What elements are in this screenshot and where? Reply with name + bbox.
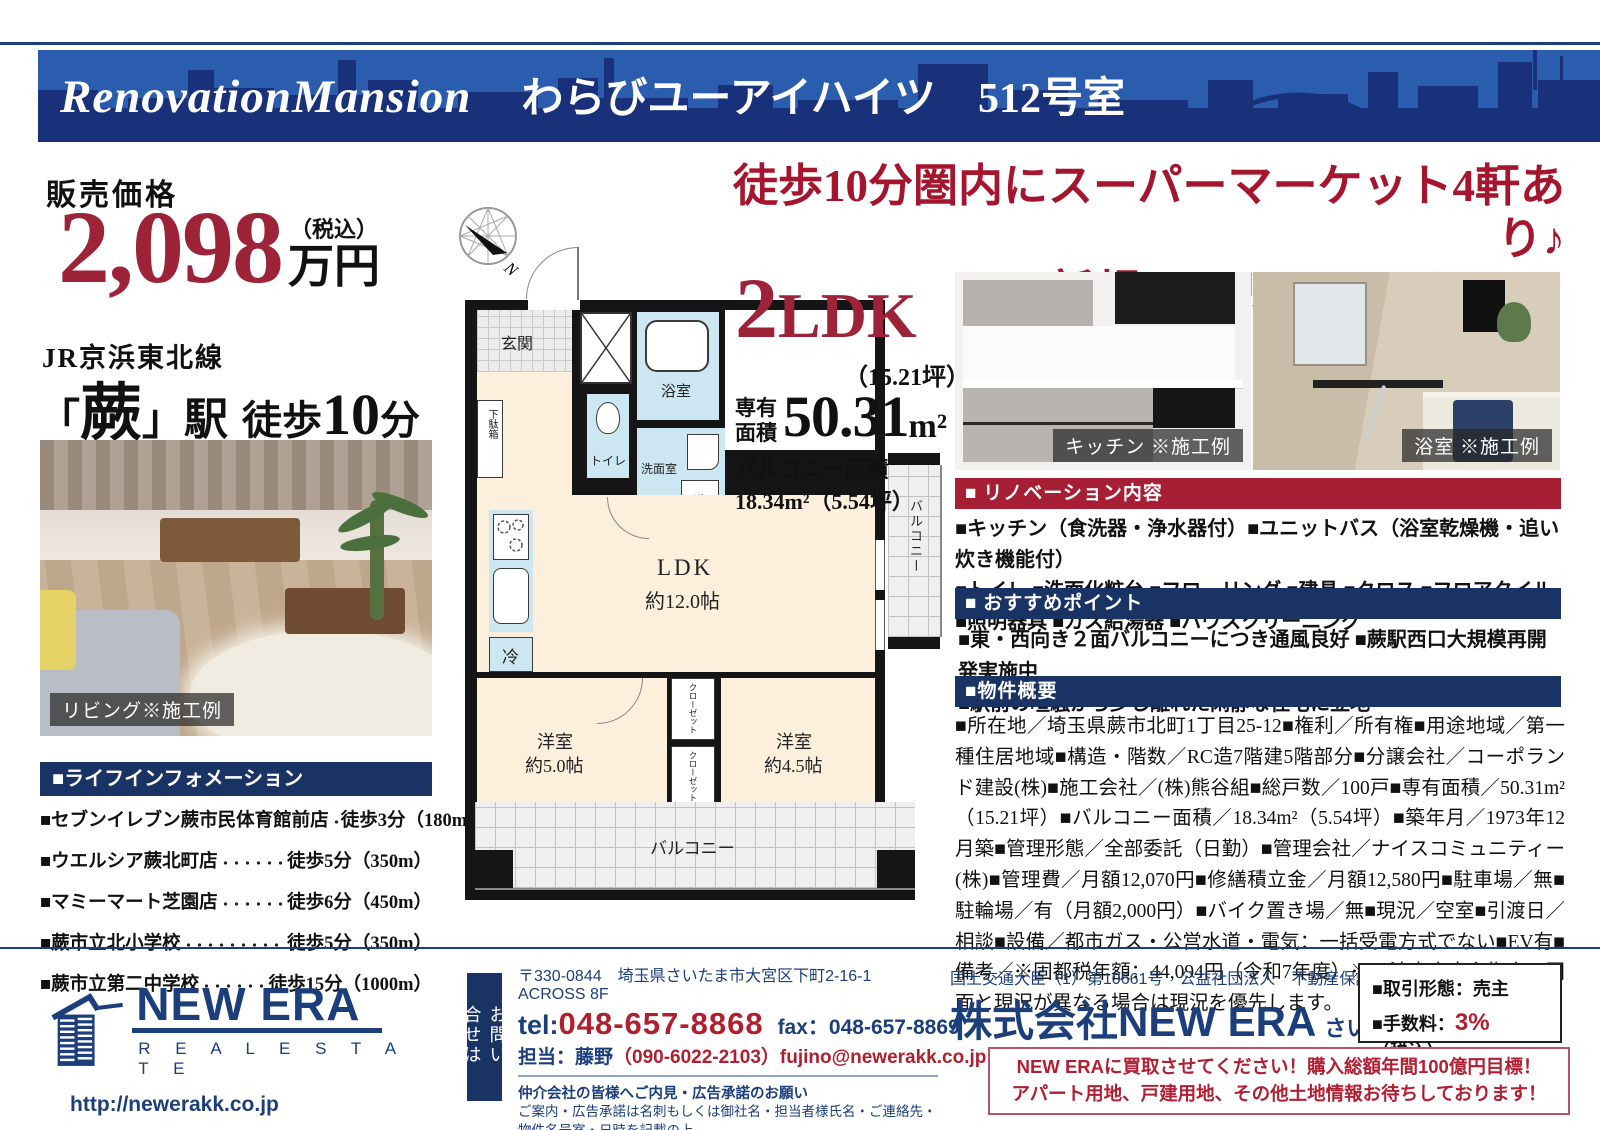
room-ldk: LDK 約12.0帖 冷 bbox=[477, 495, 875, 672]
bathtub bbox=[645, 320, 709, 372]
room-west2: 洋室 約4.5帖 bbox=[721, 678, 875, 816]
closet-upper: クローゼット bbox=[671, 678, 715, 740]
bedroom-door-arc bbox=[597, 678, 643, 724]
price-amount: 2,098 bbox=[58, 196, 282, 300]
contact-block: 〒330-0844 埼玉県さいたま市大宮区下町2-16-1 ACROSS 8F … bbox=[518, 962, 938, 1130]
kitchen-counter bbox=[489, 510, 533, 632]
bath-mirror bbox=[1293, 282, 1367, 366]
wall-segment bbox=[475, 890, 915, 900]
fee-box: ■取引形態：売主 ■手数料：3%（税込） bbox=[1358, 963, 1562, 1043]
living-room-photo: リビング※施工例 bbox=[40, 440, 432, 736]
stove bbox=[493, 514, 529, 560]
outline-header: ■物件概要 bbox=[955, 676, 1561, 707]
broker-request-title: 仲介会社の皆様へご内見・広告承諾のお願い bbox=[518, 1082, 938, 1103]
area-label: 専有 面積 bbox=[735, 396, 777, 446]
life-item: ■蕨市立北小学校徒歩5分（350m） bbox=[40, 929, 432, 955]
company-logo: NEW ERA R E A L E S T A T E http://newer… bbox=[48, 978, 408, 1117]
area-unit: m² bbox=[909, 408, 948, 446]
banner-title: RenovationMansion わらびユーアイハイツ 512号室 bbox=[60, 64, 1125, 125]
fee-percent: 3% bbox=[1455, 1009, 1490, 1036]
building-logo-icon bbox=[48, 979, 124, 1079]
phone-row: tel:048-657-8868fax：048-657-8869 bbox=[518, 1006, 938, 1042]
room-bath: 浴室 bbox=[637, 312, 719, 420]
company-url[interactable]: http://newerakk.co.jp bbox=[48, 1093, 408, 1117]
balcony-bottom: バルコニー bbox=[475, 802, 915, 890]
refrigerator-space: 冷 bbox=[489, 637, 533, 672]
ldk-door-arc bbox=[607, 497, 649, 539]
flyer-page: RenovationMansion わらびユーアイハイツ 512号室 販売価格 … bbox=[0, 0, 1600, 1130]
area-value: 50.31 bbox=[783, 388, 909, 446]
broker-request-body: ご案内・広告承諾は名刺もしくは御社名・担当者様氏名・ご連絡先・物件名号室・日時を… bbox=[518, 1103, 938, 1130]
kitchen-sink bbox=[493, 568, 529, 624]
toilet-bowl bbox=[596, 402, 620, 434]
dot-leader bbox=[220, 859, 285, 867]
kitchen-photo: キッチン ※施工例 bbox=[955, 272, 1251, 470]
price-unit: 万円 bbox=[288, 244, 380, 290]
inquiry-vertical-text: お問い合せは bbox=[459, 1005, 511, 1069]
tel-number: 048-657-8868 bbox=[559, 1006, 764, 1041]
room-west1: 洋室 約5.0帖 bbox=[477, 678, 667, 816]
agent-name: 担当：藤野 bbox=[518, 1047, 613, 1068]
property-name: わらびユーアイハイツ bbox=[521, 74, 936, 121]
deal-type: ■取引形態：売主 bbox=[1372, 975, 1560, 1001]
logo-name: NEW ERA bbox=[132, 978, 408, 1028]
life-info-header: ■ライフインフォメーション bbox=[40, 762, 432, 796]
exclusive-area: 専有 面積 50.31 m² bbox=[735, 388, 970, 446]
promo-box: NEW ERAに買取させてください！購入総額年間100億円目標！ アパート用地、… bbox=[988, 1047, 1570, 1115]
walk-minutes: 10 bbox=[322, 382, 380, 447]
room-toilet: トイレ bbox=[587, 394, 629, 478]
brand-title: RenovationMansion bbox=[60, 71, 471, 123]
station-name: 蕨 bbox=[80, 380, 142, 448]
range-hood bbox=[1115, 272, 1235, 324]
bracket-open: 「 bbox=[38, 398, 80, 444]
fax-number: fax：048-657-8869 bbox=[778, 1016, 960, 1039]
footer-rule bbox=[0, 947, 1600, 949]
balcony-area-value: 18.34m²（5.54坪） bbox=[735, 484, 970, 516]
window bbox=[875, 540, 885, 590]
entrance-opening bbox=[528, 300, 580, 310]
divider bbox=[518, 1075, 938, 1077]
agent-contact: （090-6022-2103）fujino@newerakk.co.jp bbox=[613, 1047, 986, 1068]
inquiry-vertical-bar: お問い合せは bbox=[467, 973, 502, 1101]
dot-leader bbox=[220, 900, 285, 908]
dot-leader bbox=[331, 818, 339, 826]
tel-label: tel: bbox=[518, 1010, 559, 1040]
renovation-header: ■ リノベーション内容 bbox=[955, 478, 1561, 509]
kitchen-wall bbox=[963, 326, 1235, 382]
agent-row: 担当：藤野（090-6022-2103）fujino@newerakk.co.j… bbox=[518, 1042, 938, 1069]
upper-cabinets bbox=[963, 280, 1093, 326]
wall-segment bbox=[888, 637, 940, 649]
top-rule bbox=[0, 42, 1600, 45]
compass-icon: N bbox=[455, 203, 525, 277]
balcony-pier bbox=[475, 850, 513, 888]
room-number: 512号室 bbox=[978, 76, 1125, 122]
bath-shelf bbox=[1313, 380, 1443, 388]
bath-photo: 浴室 ※施工例 bbox=[1253, 272, 1560, 470]
life-item: ■セブンイレブン蕨市民体育館前店徒歩3分（180m） bbox=[40, 806, 432, 832]
license-line: 国土交通大臣（1）第10661号 公益社団法人 不動産保証協会 bbox=[950, 965, 1410, 989]
living-caption: リビング※施工例 bbox=[50, 693, 234, 726]
walk-label: 徒歩 bbox=[242, 398, 322, 443]
promo-line2: アパート用地、戸建用地、その他土地情報お待ちしております！ bbox=[1011, 1081, 1546, 1108]
balcony-pier bbox=[877, 850, 915, 888]
station-suffix: 駅 bbox=[184, 395, 228, 444]
balcony-area-label: バルコニー面積 bbox=[735, 452, 970, 484]
logo-subtitle: R E A L E S T A T E bbox=[132, 1039, 408, 1079]
promo-line1: NEW ERAに買取させてください！購入総額年間100億円目標！ bbox=[1017, 1054, 1542, 1081]
station-access: 「蕨」駅徒歩10分 bbox=[38, 362, 420, 452]
entrance-door-arc bbox=[526, 247, 578, 299]
layout-type: 2LDK bbox=[735, 265, 970, 351]
yellow-cushion bbox=[40, 590, 76, 670]
bracket-close: 」 bbox=[142, 398, 184, 444]
built-in-stove bbox=[1153, 388, 1235, 428]
hanging-plant bbox=[1497, 302, 1531, 342]
room-genkan: 玄関 bbox=[477, 310, 572, 372]
points-header: ■ おすすめポイント bbox=[955, 588, 1561, 619]
title-banner: RenovationMansion わらびユーアイハイツ 512号室 bbox=[38, 50, 1600, 142]
entrance-door-leaf bbox=[577, 247, 579, 300]
renovation-line: ■キッチン（食洗器・浄水器付）■ユニットバス（浴室乾燥機・追い炊き機能付） bbox=[955, 514, 1567, 576]
price-row: 2,098 （税込） 万円 bbox=[58, 196, 380, 300]
window bbox=[875, 600, 885, 650]
dining-table bbox=[160, 518, 300, 562]
renovation-list: ■キッチン（食洗器・浄水器付）■ユニットバス（浴室乾燥機・追い炊き機能付） ■ト… bbox=[955, 514, 1567, 638]
shoe-cabinet: 下駄箱 bbox=[477, 400, 503, 478]
elevator-shaft bbox=[580, 312, 632, 384]
life-item: ■マミーマート芝園店徒歩6分（450m） bbox=[40, 888, 432, 914]
vanity-sink bbox=[687, 434, 719, 470]
price-unit-box: （税込） 万円 bbox=[288, 212, 380, 300]
plan-info: 2LDK （15.21坪） 専有 面積 50.31 m² バルコニー面積 18.… bbox=[735, 265, 970, 516]
office-address: 〒330-0844 埼玉県さいたま市大宮区下町2-16-1 ACROSS 8F bbox=[518, 962, 938, 1004]
price-tax-note: （税込） bbox=[288, 212, 380, 244]
tv-board bbox=[285, 588, 405, 634]
bath-caption: 浴室 ※施工例 bbox=[1402, 429, 1552, 462]
company-name: 株式会社NEW ERA bbox=[950, 998, 1316, 1045]
walk-unit: 分 bbox=[380, 398, 420, 443]
life-item: ■ウエルシア蕨北町店徒歩5分（350m） bbox=[40, 847, 432, 873]
kitchen-caption: キッチン ※施工例 bbox=[1053, 429, 1243, 462]
shower-hose bbox=[1364, 385, 1386, 443]
